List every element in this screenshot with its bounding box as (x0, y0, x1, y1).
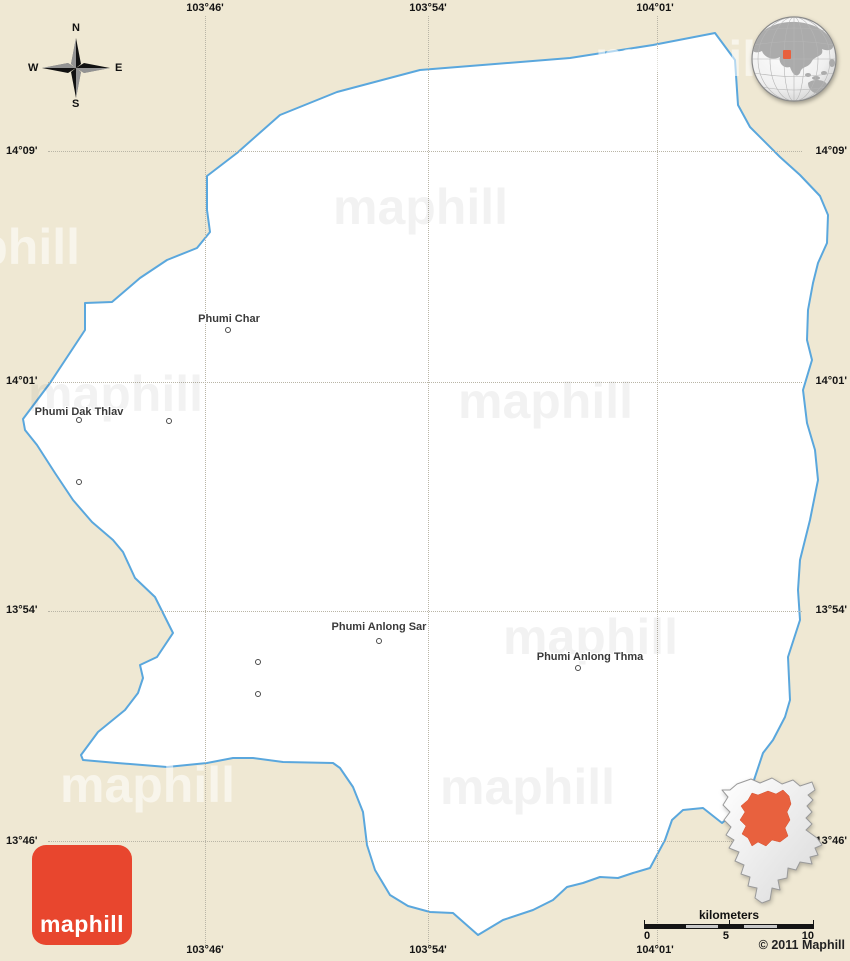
compass-west-label: W (28, 62, 38, 74)
maphill-logo[interactable]: maphill (32, 845, 132, 945)
settlement-dot (76, 417, 82, 423)
coord-label-left-2: 14°01' (6, 375, 38, 387)
coord-label-top-3: 104°01' (636, 2, 674, 14)
globe-locator-inset[interactable] (748, 15, 840, 103)
meridian-line-2 (428, 16, 429, 945)
parallel-line-1 (48, 151, 802, 152)
settlement-dot (76, 479, 82, 485)
settlement-dot (575, 665, 581, 671)
meridian-line-3 (657, 16, 658, 945)
compass-rose: N S W E (30, 26, 122, 112)
settlement-dot (255, 659, 261, 665)
place-label-phumi-anlong-sar: Phumi Anlong Sar (332, 621, 427, 633)
coord-label-left-3: 13°54' (6, 604, 38, 616)
coord-label-bottom-2: 103°54' (409, 944, 447, 956)
globe-location-marker (783, 50, 791, 59)
coord-label-top-2: 103°54' (409, 2, 447, 14)
map-page: maphill maphill maphill maphill maphill … (0, 0, 850, 961)
coord-label-left-1: 14°09' (6, 145, 38, 157)
compass-east-label: E (115, 62, 122, 74)
coord-label-bottom-1: 103°46' (186, 944, 224, 956)
meridian-line-1 (205, 16, 206, 945)
coord-label-right-1: 14°09' (816, 145, 848, 157)
maphill-logo-text: maphill (40, 911, 124, 945)
scale-bar-track (644, 924, 814, 929)
settlement-dot (255, 691, 261, 697)
district-boundary (23, 33, 828, 935)
parallel-line-2 (48, 382, 802, 383)
parallel-line-3 (48, 611, 802, 612)
coord-label-top-1: 103°46' (186, 2, 224, 14)
scale-bar: kilometers 0 5 10 (644, 908, 814, 942)
province-locator-inset[interactable] (715, 770, 830, 910)
compass-south-label: S (72, 98, 79, 110)
parallel-line-4 (48, 841, 802, 842)
place-label-phumi-anlong-thma: Phumi Anlong Thma (537, 651, 644, 663)
settlement-dot (376, 638, 382, 644)
coord-label-right-2: 14°01' (816, 375, 848, 387)
copyright-notice: © 2011 Maphill (600, 938, 845, 952)
settlement-dot (166, 418, 172, 424)
coord-label-left-4: 13°46' (6, 835, 38, 847)
compass-north-label: N (72, 22, 80, 34)
coord-label-right-3: 13°54' (816, 604, 848, 616)
place-label-phumi-char: Phumi Char (198, 313, 260, 325)
settlement-dot (225, 327, 231, 333)
